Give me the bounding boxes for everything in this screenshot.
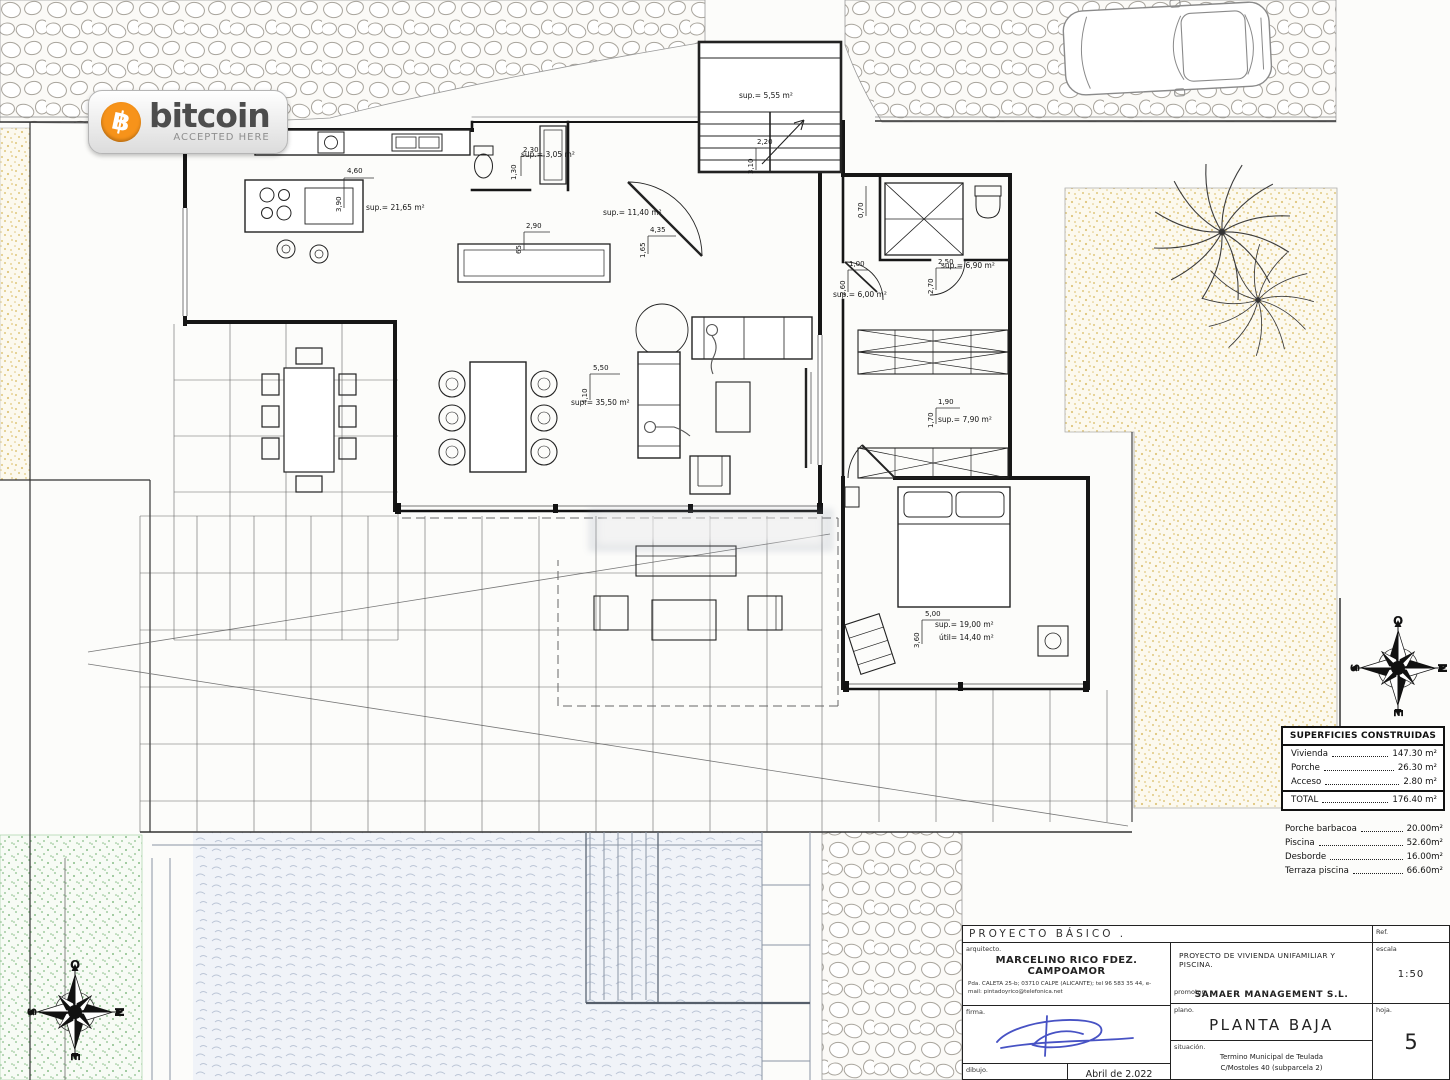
- area-label-living: sup.= 35,50 m²: [571, 399, 630, 407]
- dining-set: [439, 362, 557, 472]
- plan-name-cell: plano. PLANTA BAJA: [1171, 1004, 1373, 1041]
- dimension-label: 1,70: [928, 412, 935, 428]
- bitcoin-badge: ฿ bitcoin ACCEPTED HERE: [88, 90, 288, 154]
- dimension-label: 1,65: [640, 242, 647, 258]
- area-label-dressing: sup.= 7,90 m²: [938, 416, 992, 424]
- dotted-leader: [1353, 873, 1403, 874]
- surfaces-title: SUPERFICIES CONSTRUIDAS: [1283, 728, 1443, 746]
- dimension-label: 2,20: [757, 139, 773, 146]
- signature-scribble: [983, 1012, 1153, 1060]
- compass-letter-s: S: [25, 1008, 37, 1017]
- extra-surfaces-list: Porche barbacoa 20.00m² Piscina 52.60m² …: [1281, 821, 1445, 877]
- surface-row: Piscina 52.60m²: [1281, 835, 1445, 849]
- dotted-leader: [1332, 756, 1388, 757]
- area-label-bedroom: sup.= 19,00 m²: [935, 621, 994, 629]
- surface-value: 2.80 m²: [1403, 777, 1437, 787]
- title-block-header: PROYECTO BÁSICO .: [963, 926, 1373, 943]
- dimension-label: 2,50: [938, 259, 954, 266]
- surface-value: 16.00m²: [1407, 852, 1443, 862]
- compass-letter-o: O: [70, 959, 80, 971]
- date-cell: Abril de 2.022: [1068, 1064, 1171, 1080]
- dimension-label: 4,10: [582, 388, 589, 404]
- scale-label: escala: [1376, 945, 1397, 953]
- surface-total-row: TOTAL 176.40 m²: [1283, 790, 1443, 807]
- surface-value: 26.30 m²: [1398, 763, 1437, 773]
- promoter-label: promotor.: [1174, 988, 1206, 996]
- compass-letter-e: E: [69, 1053, 81, 1061]
- location-cell: situación. Termino Municipal de Teulada …: [1171, 1041, 1373, 1080]
- dimension-label: 1,90: [938, 399, 954, 406]
- surface-value: 176.40 m²: [1392, 795, 1437, 805]
- area-label-stairs: sup.= 5,55 m²: [739, 92, 793, 100]
- drawing-label: dibujo.: [966, 1066, 988, 1074]
- location-line1: Termino Municipal de Teulada: [1171, 1052, 1372, 1063]
- compass-letter-e: E: [1392, 709, 1404, 717]
- closets: [858, 330, 1008, 478]
- blueprint-canvas: sup.= 21,65 m² sup.= 3,05 m² sup.= 11,40…: [0, 0, 1450, 1080]
- bitcoin-symbol: ฿: [109, 105, 133, 138]
- dotted-leader: [1330, 859, 1402, 860]
- area-label-hall: sup.= 11,40 m²: [603, 209, 662, 217]
- project-title-cell: PROYECTO DE VIVIENDA UNIFAMILIAR Y PISCI…: [1171, 943, 1373, 986]
- dimension-label: 2,90: [526, 223, 542, 230]
- surface-label: Desborde: [1285, 852, 1326, 862]
- dimension-label: 2,30: [523, 147, 539, 154]
- dimension-label: 1,30: [511, 164, 518, 180]
- surface-row: Vivienda 147.30 m²: [1283, 746, 1443, 760]
- plan-name-label: plano.: [1174, 1006, 1194, 1014]
- project-title: PROYECTO DE VIVIENDA UNIFAMILIAR Y PISCI…: [1171, 943, 1372, 969]
- sheet-cell: hoja. 5: [1373, 1004, 1449, 1080]
- surface-value: 52.60m²: [1407, 838, 1443, 848]
- promoter-cell: promotor. SAMAER MANAGEMENT S.L.: [1171, 986, 1373, 1004]
- porch-furniture: [594, 546, 782, 640]
- dotted-leader: [1361, 831, 1403, 832]
- plan-name-value: PLANTA BAJA: [1171, 1016, 1372, 1034]
- scale-value: 1:50: [1373, 969, 1449, 980]
- surface-label: TOTAL: [1291, 795, 1318, 805]
- bitcoin-brand-text: bitcoin: [149, 101, 270, 131]
- surface-row: Terraza piscina 66.60m²: [1281, 863, 1445, 877]
- architect-cell: arquitecto. MARCELINO RICO FDEZ. CAMPOAM…: [963, 943, 1171, 1006]
- area-label-bedroom-util: útil= 14,40 m²: [939, 634, 994, 642]
- architect-address: Pda. CALETA 25-b; 03710 CALPE (ALICANTE)…: [968, 981, 1165, 996]
- location-label: situación.: [1174, 1043, 1205, 1051]
- dimension-label: 1,00: [849, 261, 865, 268]
- surface-value: 20.00m²: [1407, 824, 1443, 834]
- bathroom: [845, 183, 1001, 300]
- surface-label: Acceso: [1291, 777, 1321, 787]
- surface-value: 66.60m²: [1407, 866, 1443, 876]
- surface-label: Piscina: [1285, 838, 1315, 848]
- scale-cell: escala 1:50: [1373, 943, 1449, 1004]
- dimension-label: 0,70: [858, 202, 865, 218]
- bedroom: [845, 445, 1010, 607]
- surface-row: Porche barbacoa 20.00m²: [1281, 821, 1445, 835]
- surfaces-table: SUPERFICIES CONSTRUIDAS Vivienda 147.30 …: [1281, 726, 1445, 811]
- dimension-label: 3,60: [914, 632, 921, 648]
- location-line2: C/Mostoles 40 (subparcela 2): [1171, 1063, 1372, 1074]
- dimension-label: 4,35: [650, 227, 666, 234]
- dotted-leader: [1319, 845, 1403, 846]
- dimension-label: 3,90: [336, 196, 343, 212]
- dotted-leader: [1322, 802, 1388, 803]
- dimension-label: 65: [516, 245, 523, 254]
- surface-label: Vivienda: [1291, 749, 1328, 759]
- floor-plan-drawing: [0, 0, 1450, 1080]
- signature-cell: firma.: [963, 1006, 1171, 1064]
- dotted-leader: [1325, 784, 1399, 785]
- surface-row: Desborde 16.00m²: [1281, 849, 1445, 863]
- surface-row: Porche 26.30 m²: [1283, 760, 1443, 774]
- ref-cell: Ref.: [1373, 926, 1449, 943]
- drawing-cell: dibujo.: [963, 1064, 1068, 1080]
- dotted-leader: [1324, 770, 1394, 771]
- area-label-kitchen: sup.= 21,65 m²: [366, 204, 425, 212]
- title-block: PROYECTO BÁSICO . Ref. arquitecto. MARCE…: [962, 925, 1450, 1080]
- architect-name: MARCELINO RICO FDEZ. CAMPOAMOR: [963, 955, 1170, 977]
- living-room: [636, 304, 812, 494]
- dimension-label: 5,50: [593, 365, 609, 372]
- bitcoin-coin-icon: ฿: [97, 98, 144, 145]
- surfaces-panel: SUPERFICIES CONSTRUIDAS Vivienda 147.30 …: [1281, 726, 1445, 877]
- dimension-label: 5,00: [925, 611, 941, 618]
- ref-label: Ref.: [1376, 928, 1388, 936]
- surface-value: 147.30 m²: [1392, 749, 1437, 759]
- bitcoin-tagline: ACCEPTED HERE: [173, 132, 269, 143]
- surface-row: Acceso 2.80 m²: [1283, 774, 1443, 788]
- architect-label: arquitecto.: [966, 945, 1001, 953]
- dimension-label: 2,60: [840, 280, 847, 296]
- sheet-number: 5: [1373, 1030, 1449, 1054]
- compass-letter-o: O: [1393, 615, 1403, 627]
- date-value: Abril de 2.022: [1068, 1069, 1170, 1080]
- compass-letter-n: N: [113, 1007, 125, 1017]
- sheet-label: hoja.: [1376, 1006, 1392, 1014]
- dimension-label: 3,10: [748, 158, 755, 174]
- compass-letter-s: S: [1348, 664, 1360, 673]
- car: [1062, 0, 1273, 102]
- compass-letter-n: N: [1436, 663, 1448, 673]
- surface-label: Porche barbacoa: [1285, 824, 1357, 834]
- compass-rose-right: [1350, 620, 1446, 716]
- dimension-label: 4,60: [347, 168, 363, 175]
- dimension-label: 2,70: [928, 278, 935, 294]
- watermark: [588, 508, 834, 552]
- surface-label: Porche: [1291, 763, 1320, 773]
- surface-label: Terraza piscina: [1285, 866, 1349, 876]
- staircase: [699, 42, 841, 172]
